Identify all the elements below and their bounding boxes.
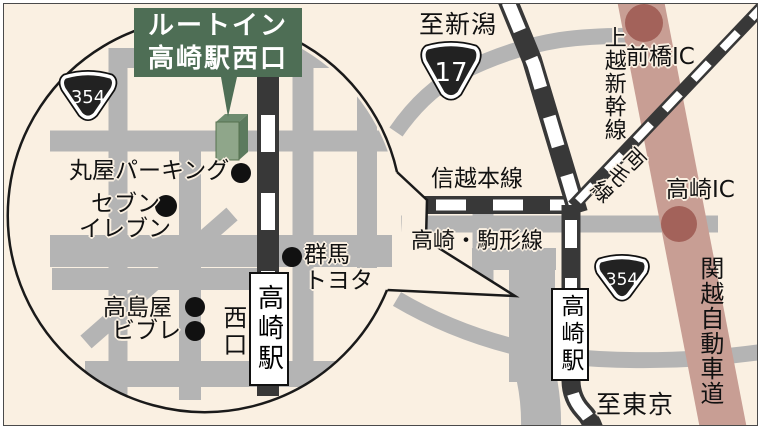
line-label-joetsu-shinkansen: 上越新幹線 (601, 26, 625, 141)
ic-label-takasaki: 高崎IC (666, 178, 735, 203)
line-label-komagata: 高崎・駒形線 (411, 230, 543, 254)
west-exit-label: 西口 (219, 305, 245, 359)
takasaki-ic-dot (661, 206, 697, 242)
poi-dot-vivre (185, 321, 205, 341)
maebashi-ic-dot (625, 4, 663, 42)
hotel-callout: ルートイン 高崎駅西口 (134, 8, 302, 77)
poi-dot-takashimaya (185, 297, 205, 317)
south-descender-road (530, 353, 541, 429)
access-map: 354 17 354 ルートイン 高崎駅西口 丸屋パーキング セブン イレブン … (0, 0, 761, 429)
station-label-circle: 高崎駅 (251, 284, 288, 374)
shield-number: 354 (606, 270, 638, 290)
line-label-shinetsu-honsen: 信越本線 (431, 167, 523, 192)
line-label-kanetsu-expressway: 関越自動車道 (696, 256, 722, 406)
poi-dot-maruya (231, 163, 251, 183)
hotel-callout-line1: ルートイン (134, 10, 302, 43)
direction-label-to-niigata: 至新潟 (419, 11, 497, 38)
poi-label-vivre: ビブレ (112, 319, 181, 344)
station-label-overview: 高崎駅 (553, 294, 587, 375)
ic-label-maebashi: 前橋IC (626, 45, 695, 70)
poi-label-gunma: 群馬 (304, 243, 350, 268)
poi-label-toyota: トヨタ (304, 269, 373, 294)
station-box-takasaki-overview: 高崎駅 (551, 288, 589, 381)
poi-label-seven: セブン (91, 192, 160, 217)
poi-dot-gunma-toyota (282, 247, 302, 267)
poi-label-eleven: イレブン (79, 217, 171, 242)
hotel-building (216, 114, 248, 160)
station-box-takasaki-circle: 高崎駅 (249, 272, 289, 386)
shield-number: 17 (434, 58, 467, 88)
shield-number: 354 (71, 87, 105, 108)
poi-label-maruya-parking: 丸屋パーキング (69, 159, 229, 184)
direction-label-to-tokyo: 至東京 (596, 391, 674, 418)
hotel-callout-line2: 高崎駅西口 (134, 43, 302, 76)
